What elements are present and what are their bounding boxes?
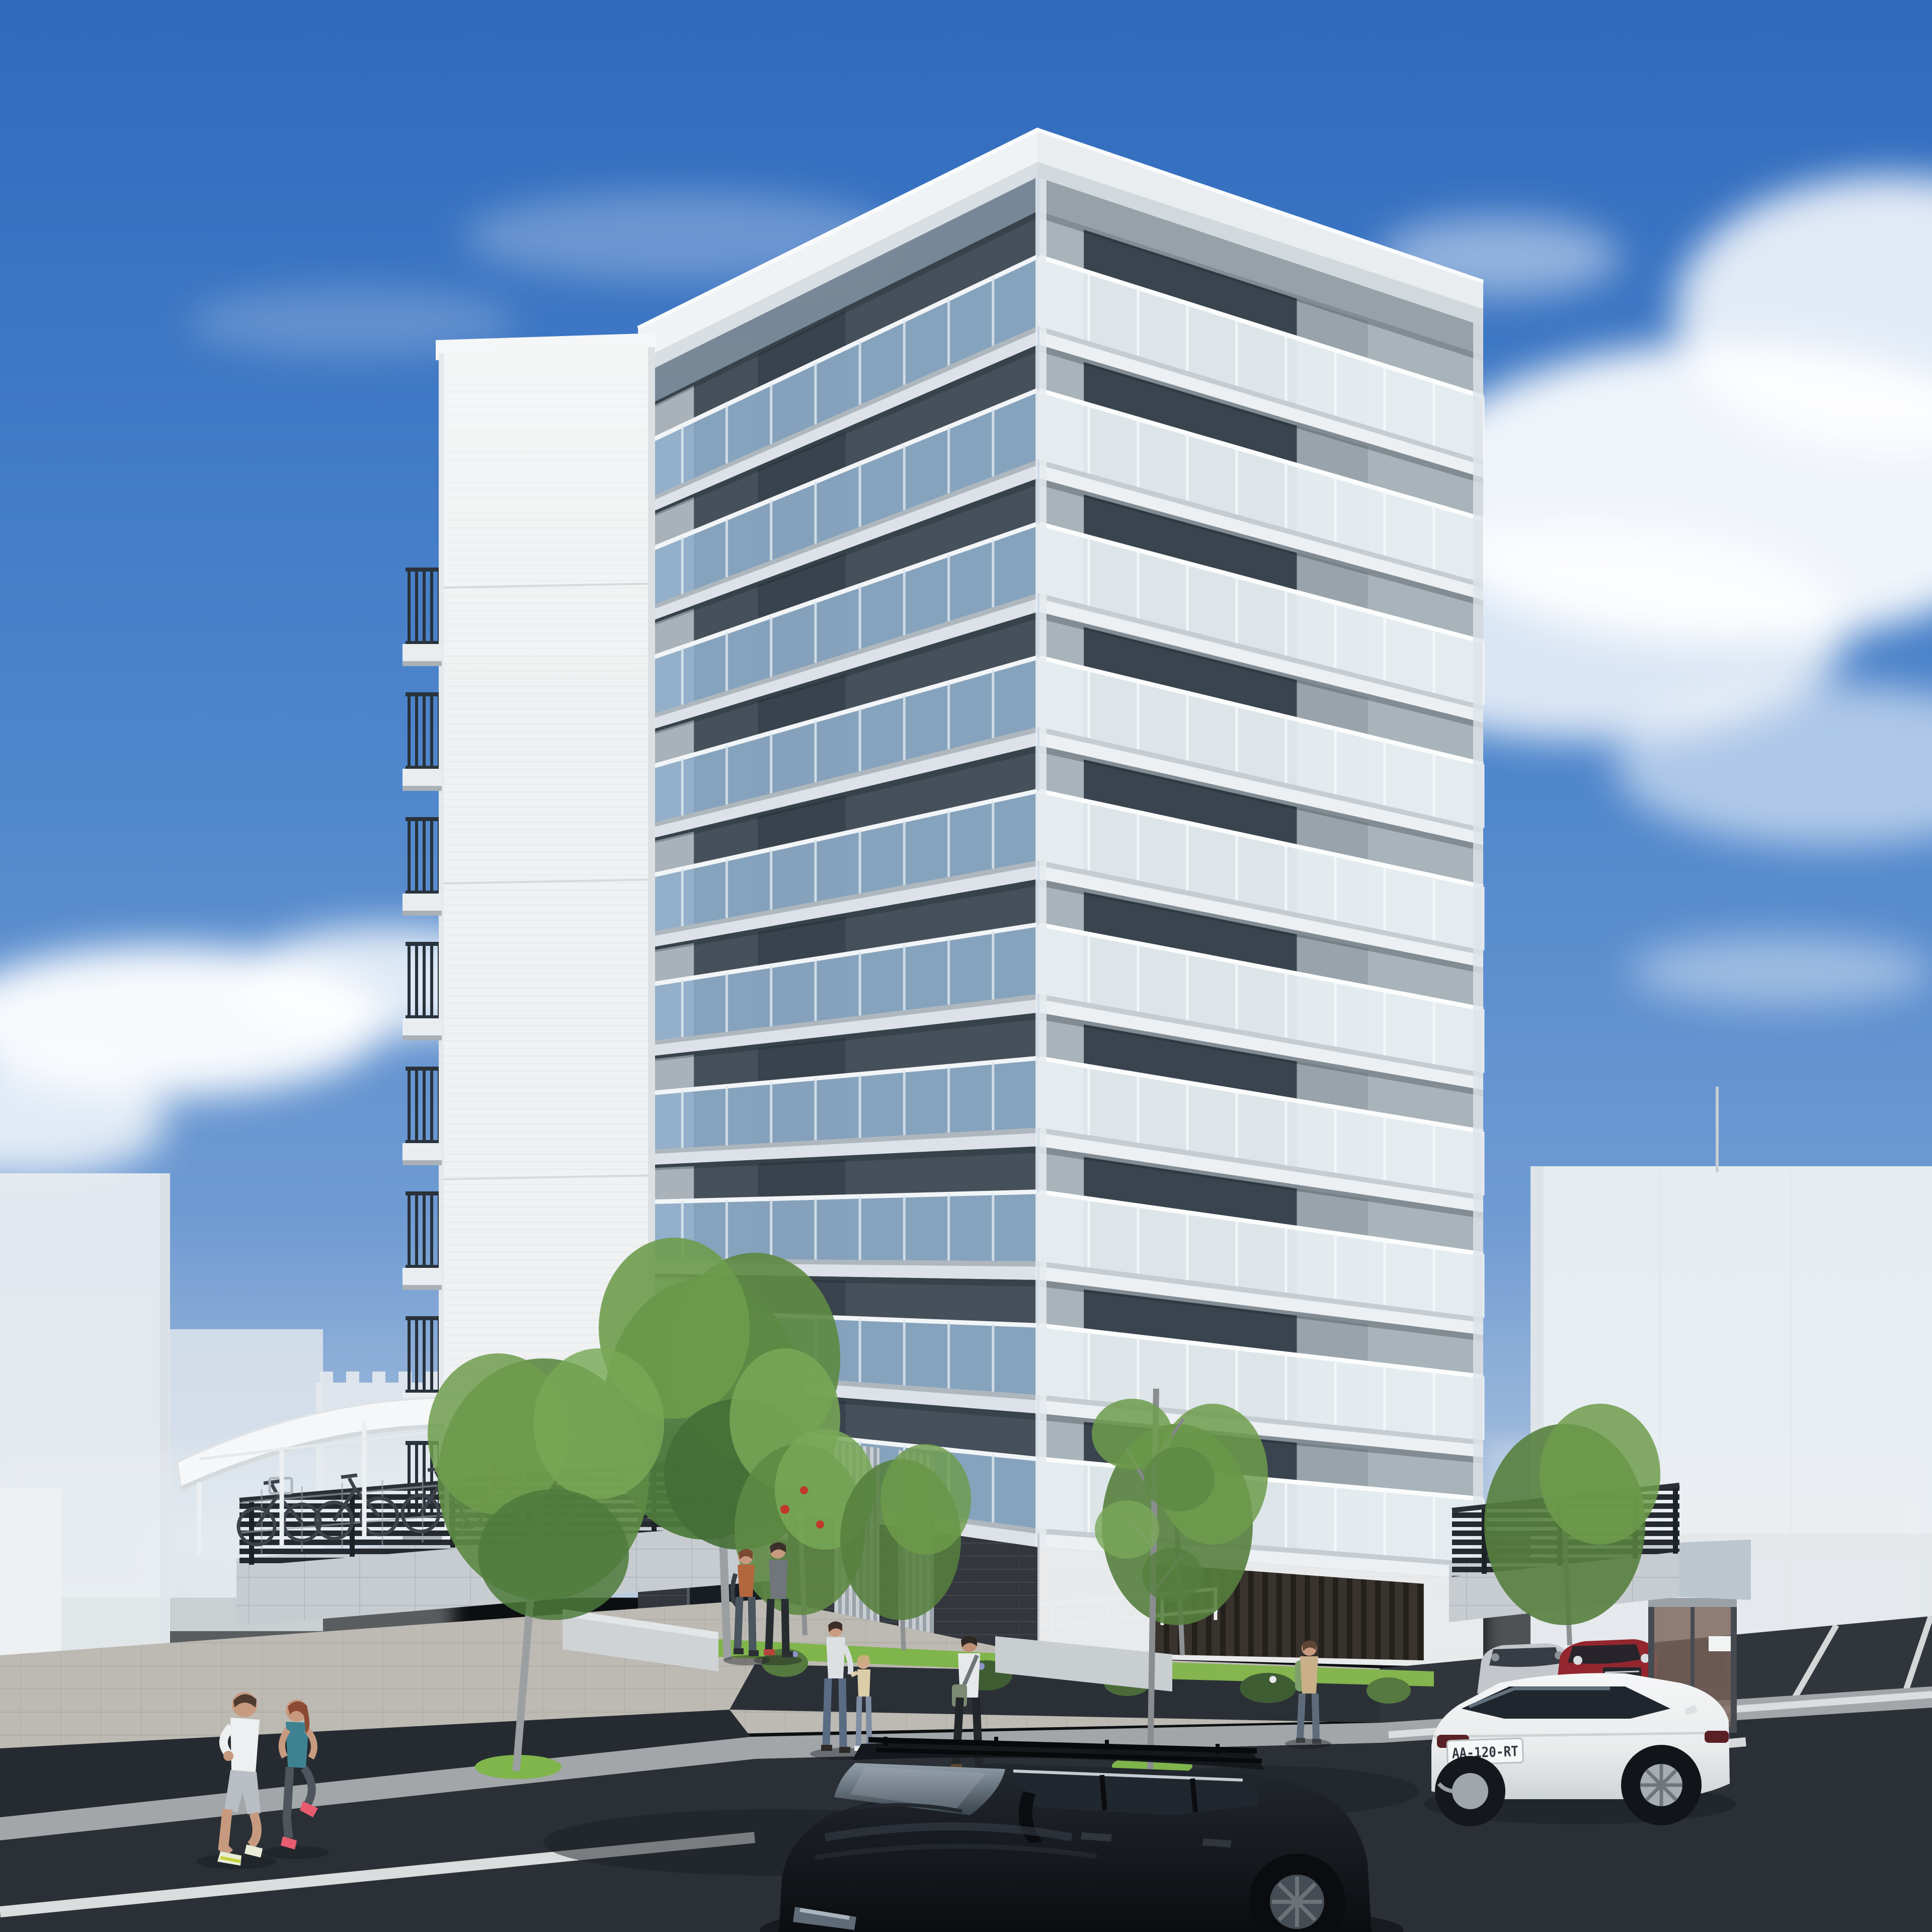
- right-facade-balconies: [1039, 211, 1483, 1580]
- scene-rendering: Residential tower exterior rendering: [0, 0, 1932, 1932]
- right-edge-pier: [1473, 282, 1483, 1580]
- corner-edge: [1035, 132, 1046, 1655]
- rendering-canvas: Residential tower exterior rendering: [0, 0, 1932, 1932]
- kiosk-sign: [1709, 1636, 1731, 1651]
- antenna-pole: [1716, 1087, 1719, 1172]
